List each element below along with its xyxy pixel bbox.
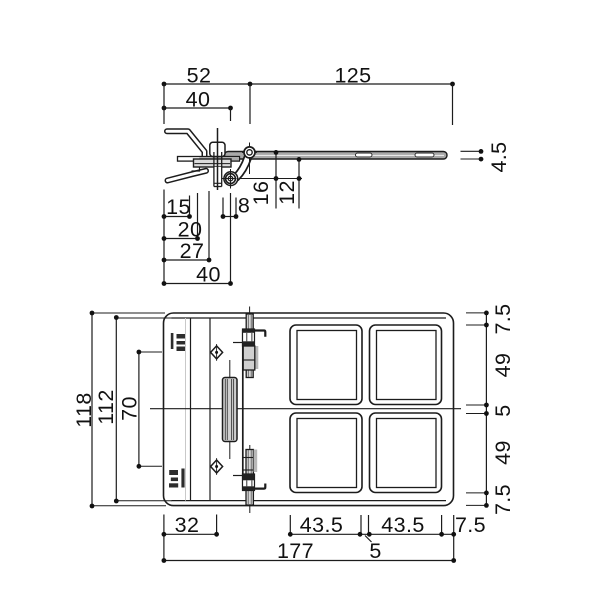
- svg-text:43.5: 43.5: [300, 513, 343, 537]
- svg-text:16: 16: [249, 181, 273, 206]
- svg-text:49: 49: [491, 440, 515, 465]
- svg-text:27: 27: [180, 239, 205, 263]
- svg-text:40: 40: [196, 263, 221, 287]
- svg-text:7.5: 7.5: [491, 484, 515, 515]
- svg-text:32: 32: [175, 513, 200, 537]
- svg-text:70: 70: [118, 396, 142, 421]
- svg-text:112: 112: [94, 389, 118, 424]
- svg-text:125: 125: [334, 64, 371, 88]
- svg-text:40: 40: [186, 88, 211, 112]
- svg-text:8: 8: [238, 194, 250, 218]
- svg-text:12: 12: [275, 180, 299, 205]
- svg-text:5: 5: [491, 404, 515, 416]
- svg-text:52: 52: [187, 64, 212, 88]
- svg-text:43.5: 43.5: [381, 513, 424, 537]
- svg-text:15: 15: [166, 195, 191, 219]
- svg-text:5: 5: [369, 539, 381, 563]
- svg-text:49: 49: [491, 353, 515, 378]
- svg-text:4.5: 4.5: [487, 141, 511, 172]
- svg-text:118: 118: [72, 392, 96, 427]
- svg-text:20: 20: [178, 218, 203, 242]
- svg-text:7.5: 7.5: [491, 303, 515, 334]
- svg-text:7.5: 7.5: [455, 513, 486, 537]
- svg-text:177: 177: [277, 539, 314, 563]
